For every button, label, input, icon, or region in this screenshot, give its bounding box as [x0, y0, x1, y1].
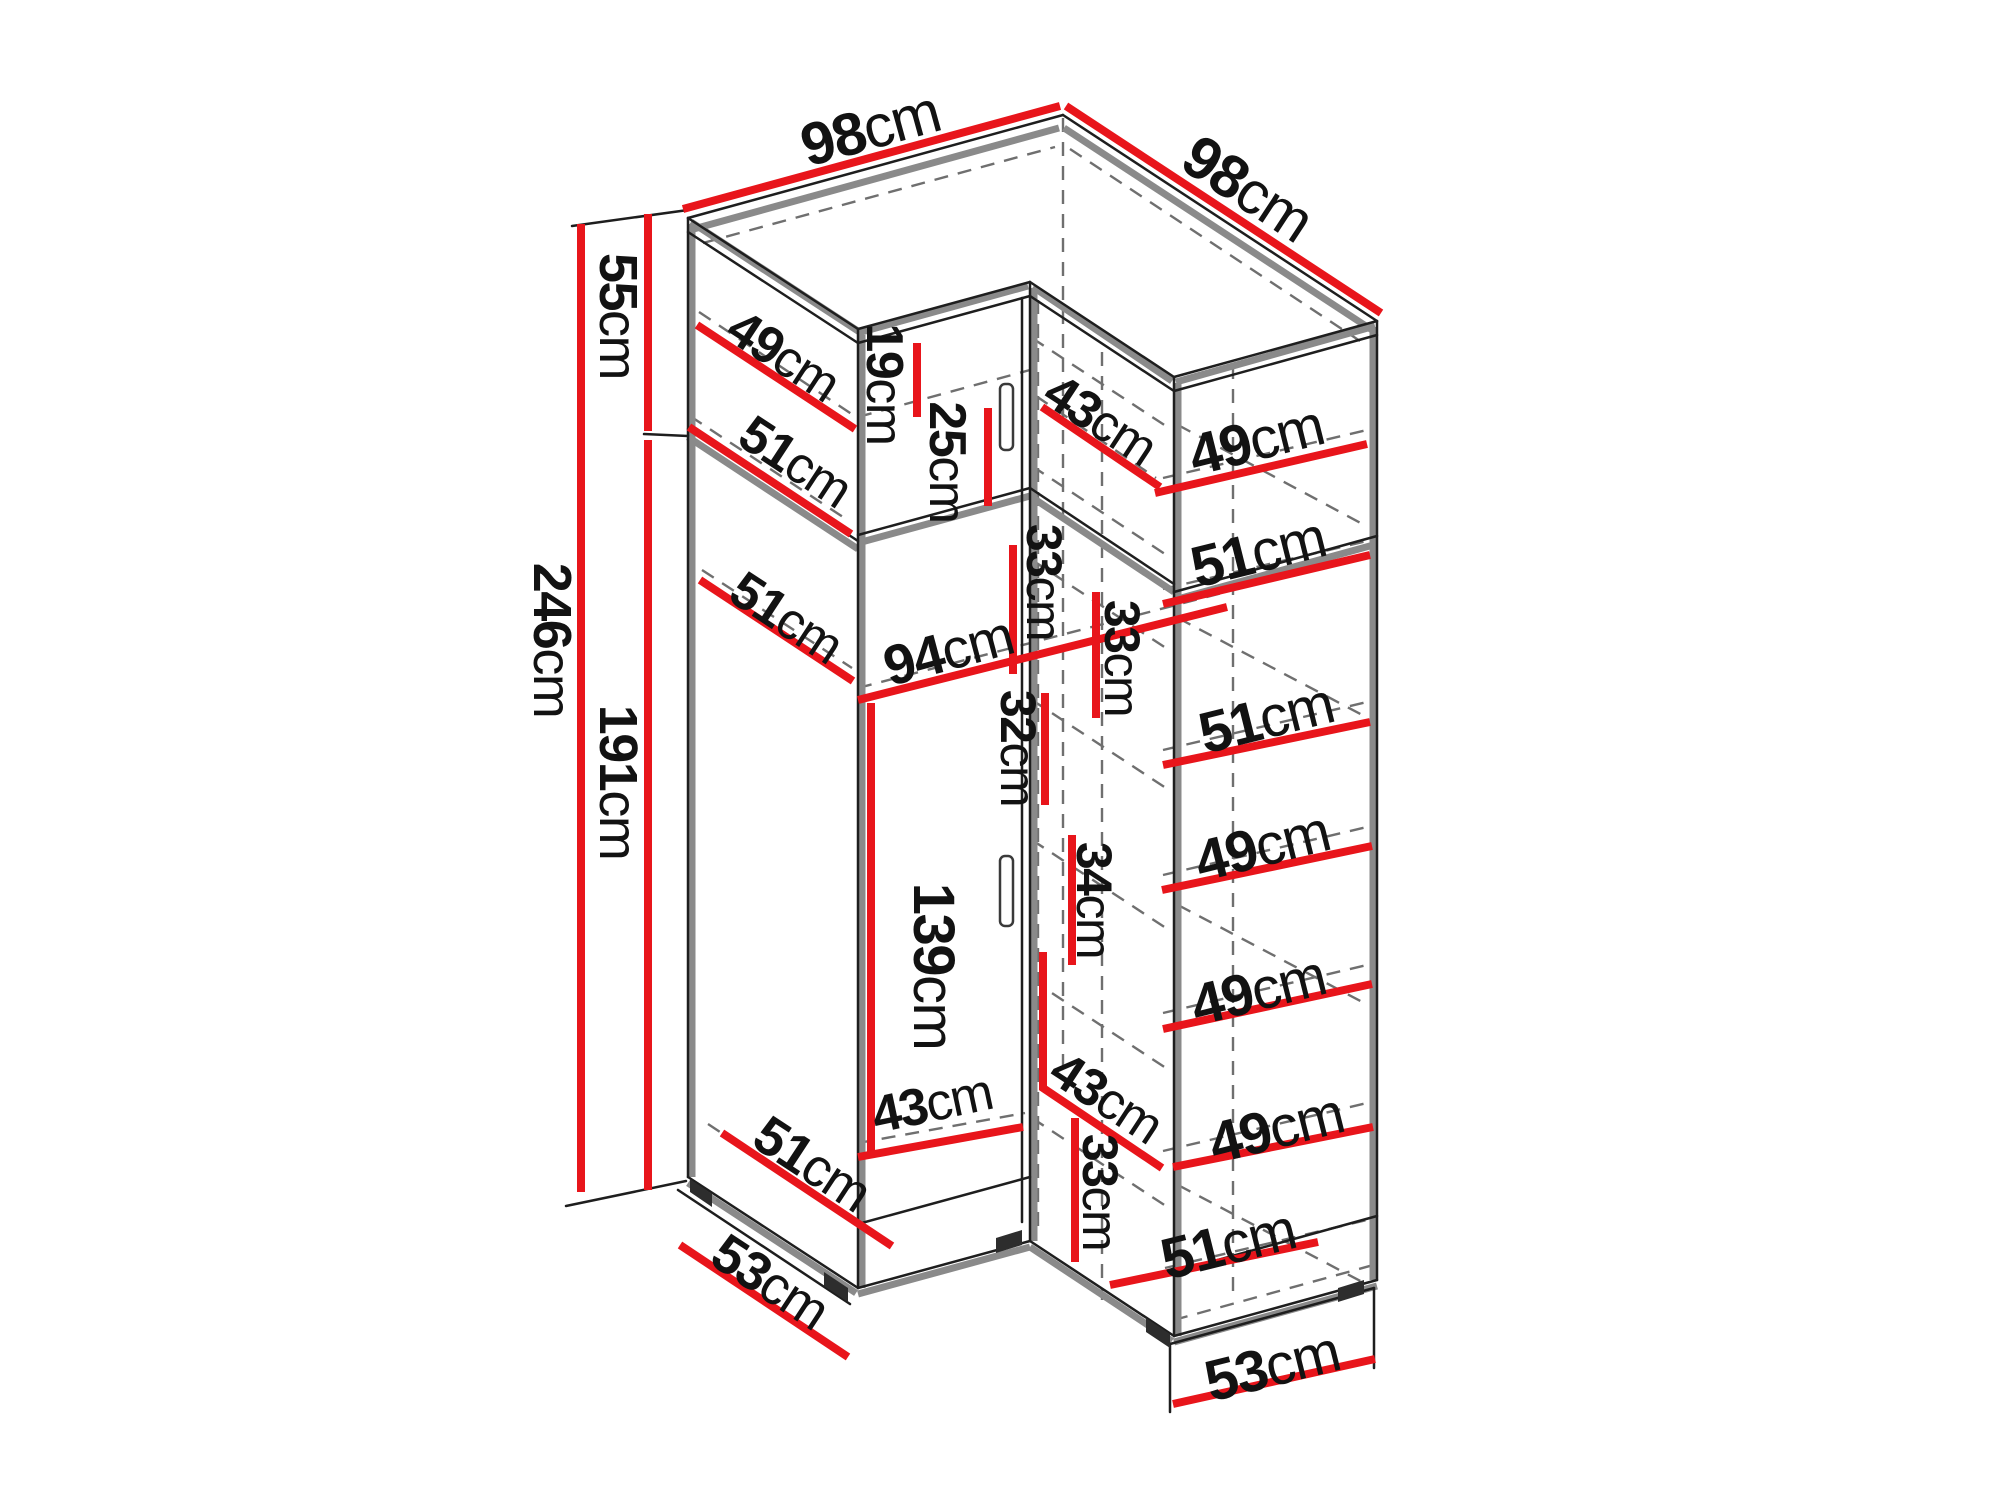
lower-door-handle: [1000, 856, 1013, 926]
upper-door-handle: [1000, 384, 1013, 450]
dimension-label-hanging-height: 139cm: [902, 883, 967, 1050]
dimension-label-right-shelf-4: 49cm: [1188, 798, 1336, 894]
dimension-label-side-gap-34: 34cm: [1066, 842, 1122, 958]
dimension-label-mid-shelf-depth: 51cm: [719, 560, 852, 675]
dimension-label-right-shelf-6: 49cm: [1202, 1080, 1350, 1176]
dimension-label-upper-height: 55cm: [588, 253, 648, 379]
dimension-label-corner-gap-1: 33cm: [1016, 524, 1072, 640]
dimension-label-bottom-corner-gap: 33cm: [1072, 1134, 1128, 1250]
dimension-label-interior-width: 94cm: [877, 603, 1020, 698]
dimension-label-upper-gap: 19cm: [855, 323, 913, 444]
dimension-label-top-corner-depth: 43cm: [1033, 362, 1166, 477]
diagram-canvas: 98cm98cm55cm246cm191cm49cm51cm51cm19cm25…: [0, 0, 2000, 1500]
dimension-label-upper-gap-2: 25cm: [918, 401, 976, 522]
wardrobe-dimension-diagram: 98cm98cm55cm246cm191cm49cm51cm51cm19cm25…: [0, 0, 2000, 1500]
dimension-label-side-gap-32: 32cm: [990, 690, 1046, 806]
dimension-label-right-shelf-3: 51cm: [1192, 670, 1340, 766]
dimension-label-total-height: 246cm: [522, 563, 582, 718]
dimension-label-right-shelf-5: 49cm: [1184, 942, 1332, 1038]
dimension-label-lower-height: 191cm: [588, 705, 648, 860]
dimension-label-corner-gap-2: 33cm: [1094, 600, 1150, 716]
dimension-label-top-right-width: 98cm: [1171, 121, 1325, 254]
dimension-labels: 98cm98cm55cm246cm191cm49cm51cm51cm19cm25…: [522, 77, 1350, 1414]
